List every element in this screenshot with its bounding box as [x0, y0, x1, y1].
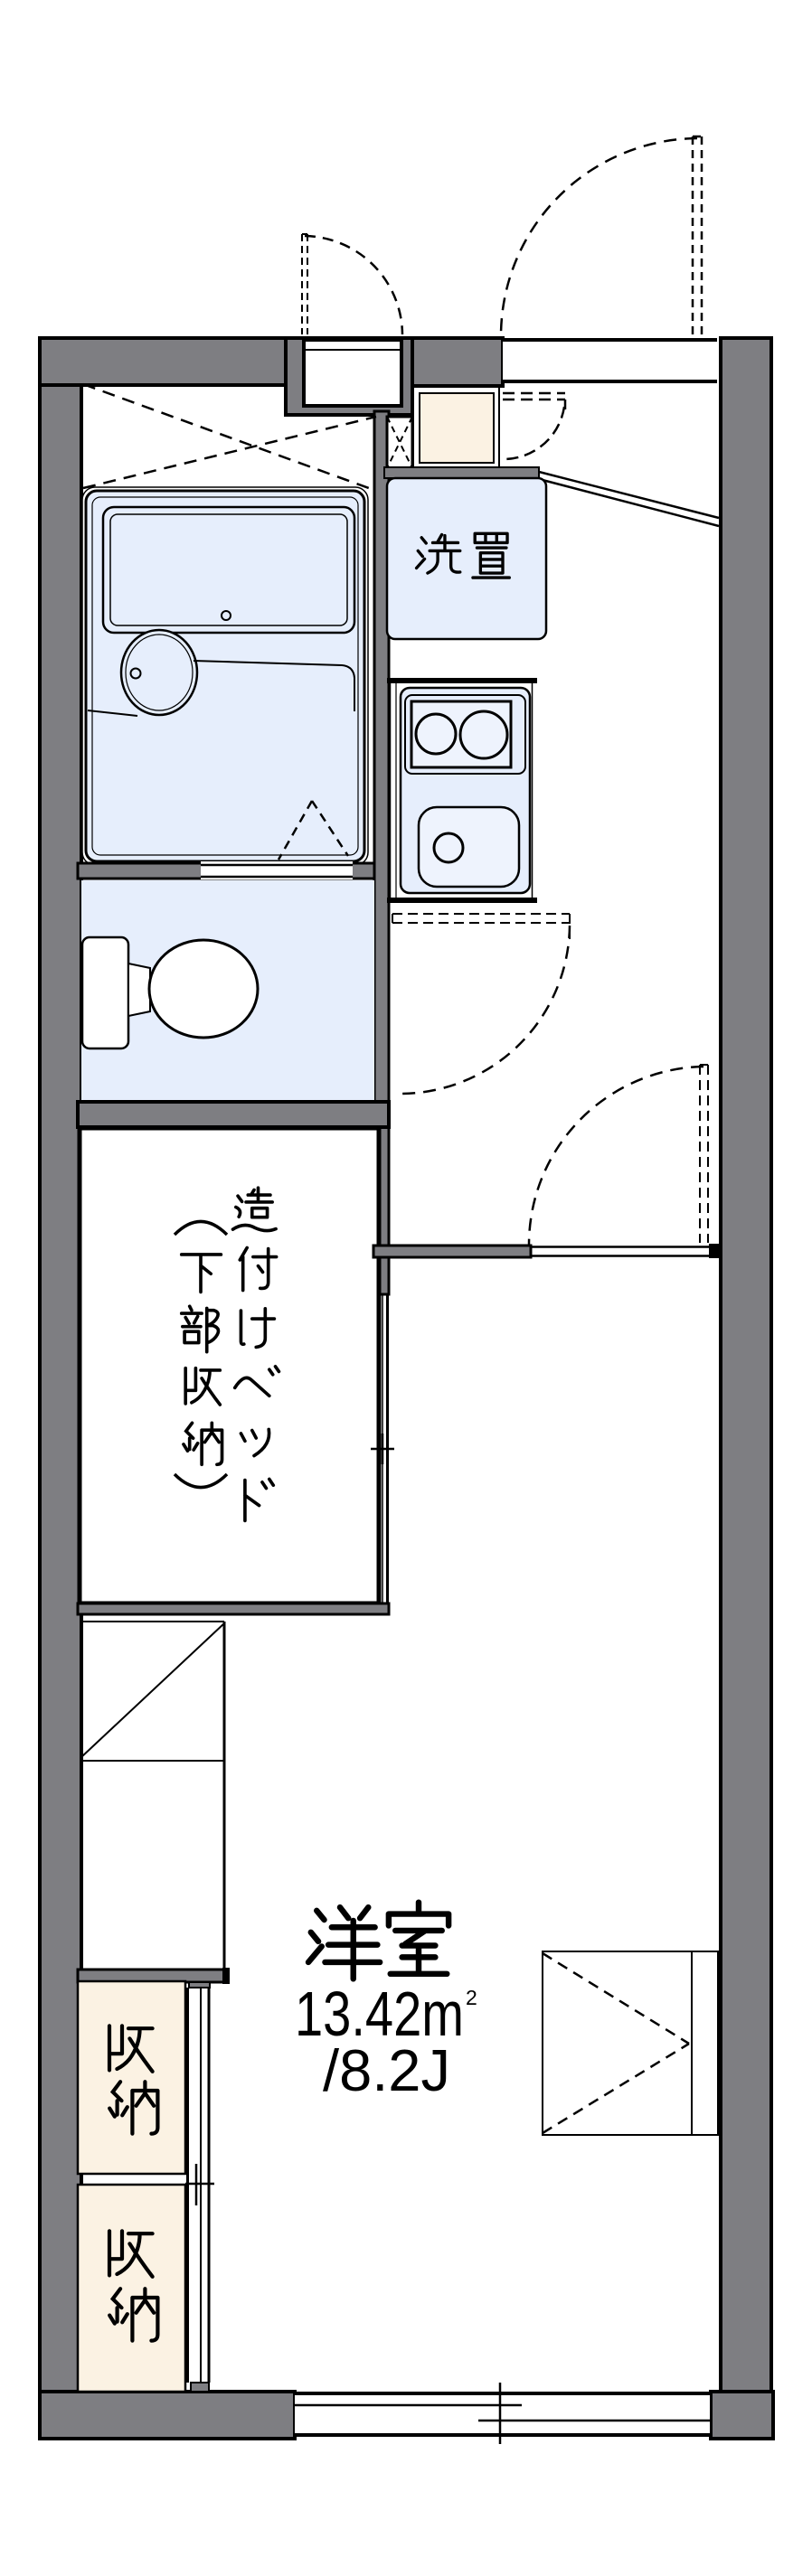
svg-text:/8.2J: /8.2J	[323, 2037, 450, 2103]
svg-text:2: 2	[466, 1986, 477, 2009]
